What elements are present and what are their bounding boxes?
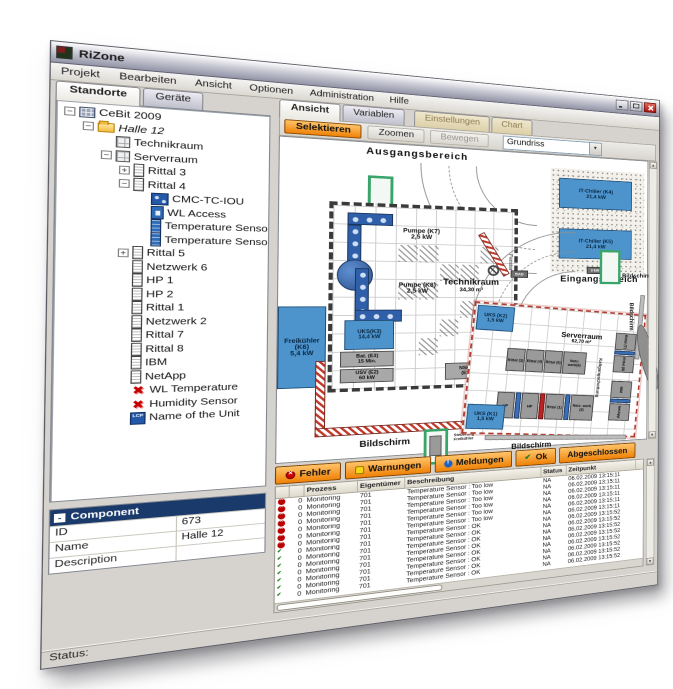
ok-icon [525, 454, 533, 462]
room-title-serverraum: Serverraum 62,70 m² [546, 329, 616, 346]
app-window: RiZone ProjektBearbeitenAnsichtOptionenA… [40, 40, 660, 670]
tree-item-label: Rittal 1 [146, 302, 184, 313]
tree-item-label: Rittal 8 [145, 343, 184, 355]
scroll-up-icon[interactable]: ▲ [650, 162, 657, 169]
collapse-icon[interactable]: − [101, 151, 112, 160]
unit-usv-e2[interactable]: USV (E2) 60 kW [340, 368, 394, 384]
error-icon [277, 541, 285, 548]
tree-item-label: Rittal 5 [147, 247, 185, 259]
scroll-down-icon[interactable]: ▼ [647, 557, 654, 565]
unit-uks-k2[interactable]: UKS (K2) 1,5 kW [476, 305, 516, 332]
app-logo-icon [56, 45, 73, 59]
rack-rittal-5[interactable]: Rittal (5) [543, 350, 563, 373]
rack-rittal-3[interactable]: Rittal (3) [505, 348, 526, 372]
page-background: RiZone ProjektBearbeitenAnsichtOptionenA… [0, 0, 673, 689]
error-icon [278, 520, 286, 527]
events-panel: Fehler Warnungen Meldungen Ok Abgeschlos… [273, 441, 654, 621]
zoomen-button[interactable]: Zoomen [368, 125, 425, 143]
location-tree: −CeBit 2009−Halle 12Technikraum−Serverra… [49, 99, 270, 503]
ok-icon [277, 592, 285, 599]
rack-icon [132, 260, 143, 273]
error-icon [286, 470, 296, 479]
label-fenster: Fenster [507, 254, 512, 271]
status-label: Status: [49, 648, 89, 664]
redx-icon: ✖ [130, 385, 146, 397]
maximize-icon[interactable] [630, 101, 642, 112]
ok-icon [277, 570, 285, 577]
room-title-technikraum: Technikraum 34,30 m² [427, 278, 514, 294]
lcp-icon: LCP [130, 412, 146, 425]
expand-icon[interactable]: + [119, 165, 130, 174]
rack-rittal-1[interactable]: Rittal (1) [544, 394, 565, 420]
folder-icon [98, 122, 115, 133]
wall-segment [315, 361, 326, 437]
menu-item-hilfe[interactable]: Hilfe [382, 93, 417, 109]
collapse-icon[interactable]: - [54, 513, 66, 523]
pump-pipes [355, 268, 369, 311]
label-kaltgangschottung: Kaltgangschottung [592, 358, 603, 421]
tree-item-label: Rittal 4 [148, 179, 186, 192]
screen-bar [485, 435, 626, 440]
close-icon[interactable] [644, 102, 656, 113]
rack-rittal-8[interactable]: Rittal (8) [613, 355, 635, 373]
label-bildschirm-right: Bildschirm [628, 303, 634, 331]
bewegen-button[interactable]: Bewegen [430, 130, 488, 147]
screen-marker [600, 250, 621, 284]
error-icon [278, 512, 286, 519]
tree-item-label: Temperature Sensor [164, 234, 270, 248]
rack-hp-2[interactable]: HP [520, 393, 540, 419]
rack-icon [130, 370, 141, 384]
tree-item-label: Rittal 7 [145, 329, 183, 341]
rack-icon [132, 246, 143, 259]
room-icon [115, 150, 130, 162]
rack-icon [132, 287, 143, 300]
chevron-down-icon[interactable]: ▼ [589, 142, 601, 155]
expand-icon[interactable]: + [118, 248, 129, 257]
event-vertical-scrollbar[interactable]: ▲ ▼ [646, 458, 655, 566]
error-icon [277, 534, 285, 541]
redx-icon: ✖ [130, 398, 146, 410]
tree-item-label: WL Access [167, 207, 226, 220]
tree-item-label: HP 1 [146, 275, 173, 287]
rack-netapp[interactable]: NetApp [608, 403, 630, 421]
ok-icon [277, 584, 285, 591]
rack-netzwerk-2[interactable]: Netz- werk (2) [569, 395, 594, 421]
devsensor-icon [150, 232, 161, 246]
floorplan-canvas[interactable]: Ausgangsbereich Pumpe [275, 136, 648, 464]
scroll-up-icon[interactable]: ▲ [647, 459, 654, 466]
room-serverraum[interactable]: UKS (K2) 1,5 kW Serverraum 62,70 m² Ritt… [461, 301, 646, 437]
devcmc-icon [151, 192, 169, 205]
unit-pumpe-k7[interactable]: Pumpe (K7) 2,5 kW [395, 228, 448, 241]
scroll-down-icon[interactable]: ▼ [649, 431, 656, 438]
unit-uks-k1[interactable]: UKS (K1) 1,5 kW [465, 404, 505, 430]
error-icon [278, 527, 286, 534]
room-icon [116, 136, 131, 148]
collapse-icon[interactable]: − [119, 179, 130, 188]
column-status: Status [541, 465, 566, 477]
ok-icon [277, 563, 285, 570]
warning-icon [355, 465, 364, 473]
rack-icon [133, 164, 144, 178]
left-panel: Standorte Geräte −CeBit 2009−Halle 12Tec… [47, 80, 277, 650]
error-icon [278, 498, 286, 505]
rack-icon [132, 274, 143, 287]
collapse-icon[interactable]: − [83, 121, 94, 130]
unit-it-chiller-k4[interactable]: IT-Chiller (K4) 21,4 kW [559, 178, 632, 211]
rack-icon [133, 177, 144, 191]
rack-rittal-4[interactable]: Rittal (4) [524, 349, 544, 372]
area-label-ausgangsbereich: Ausgangsbereich [366, 146, 468, 163]
tree-item-label: Netzwerk 2 [146, 316, 207, 328]
error-icon [278, 505, 286, 512]
collapse-icon[interactable]: − [64, 106, 75, 116]
tree-item-label: NetApp [145, 370, 186, 382]
unit-bat-e3[interactable]: Bat. (E3) 15 Min. [340, 351, 394, 368]
rack-icon [131, 356, 142, 370]
unit-uks-k3[interactable]: UKS(K3) 14,4 kW [344, 320, 394, 350]
event-state-cell [275, 591, 289, 601]
tree-item-label: Name of the Unit [149, 408, 240, 423]
event-cell: 0 [289, 590, 304, 598]
tree-item-hp-2[interactable]: HP 2 [56, 287, 267, 301]
ok-icon [277, 577, 285, 584]
wall-chip: BAD [511, 270, 528, 277]
tree-item-label: Rittal 3 [148, 165, 186, 178]
property-grid: - Component ID 673 Name Halle 12 Descrip… [48, 493, 266, 575]
ok-icon [277, 556, 285, 563]
concrete-zone: IT-Chiller (K4) 21,4 kW IT-Chiller (K5) … [550, 168, 644, 274]
devwl-icon [151, 206, 164, 220]
ok-button[interactable]: Ok [516, 448, 556, 467]
window-title: RiZone [79, 48, 125, 64]
rack-icon [131, 315, 142, 328]
selektieren-button[interactable]: Selektieren [284, 119, 362, 139]
plan-vertical-scrollbar[interactable]: ▲ ▼ [648, 161, 658, 439]
steuerung-box [429, 435, 441, 456]
rack-icon [131, 329, 142, 342]
no-entry-icon [488, 265, 500, 276]
tree-item-label: HP 2 [146, 289, 173, 300]
rack-ibm[interactable]: IBM [610, 381, 632, 399]
rack-rittal-7[interactable]: Rittal (7) [615, 333, 637, 351]
label-bildschirm-left: Bildschirm [359, 437, 410, 450]
tree-item-rittal-1[interactable]: Rittal 1 [56, 301, 267, 315]
tree-item-hp-1[interactable]: HP 1 [56, 273, 267, 288]
tree-item-label: Netzwerk 6 [146, 261, 207, 273]
devsensor-icon [150, 219, 161, 233]
tree-item-label: IBM [145, 357, 167, 369]
rack-netzwerk-6[interactable]: Netz- werk(6) [562, 351, 587, 374]
info-icon [444, 459, 452, 467]
minimize-icon[interactable] [616, 99, 629, 110]
site-icon [79, 106, 95, 118]
rack-icon [131, 342, 142, 356]
unit-it-chiller-k5[interactable]: IT-Chiller (K5) 21,4 kW [559, 228, 632, 260]
right-panel: Ansicht Variablen Einstellungen Chart Se… [273, 99, 656, 621]
ok-icon [277, 548, 285, 555]
rack-icon [131, 301, 142, 314]
